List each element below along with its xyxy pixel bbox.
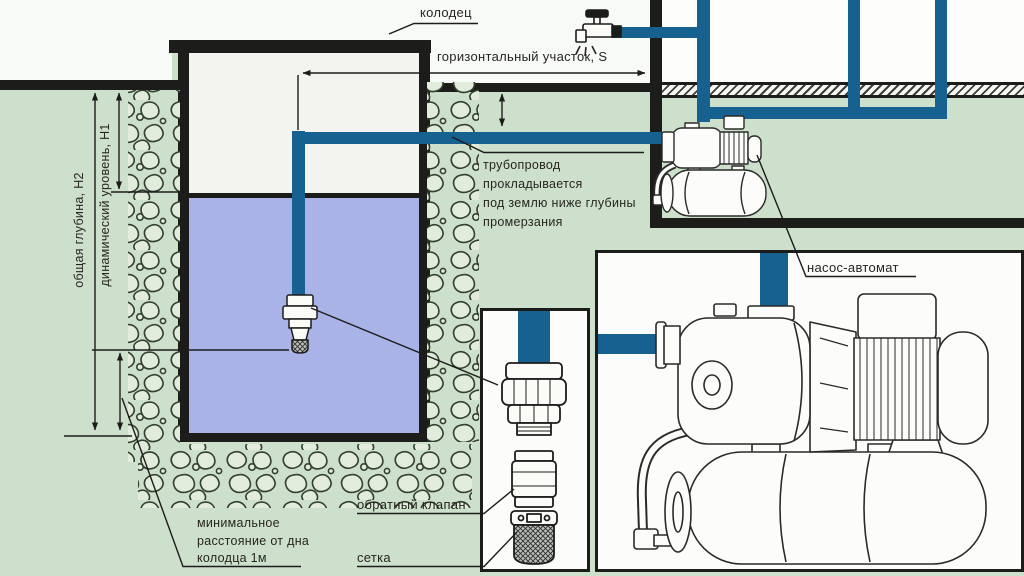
inset-foot-valve-box bbox=[480, 308, 590, 572]
well-water-supply-diagram: колодец горизонтальный участок, S трубоп… bbox=[0, 0, 1024, 576]
inset-pump-box bbox=[595, 250, 1024, 572]
pipeline-note-line: трубопровод bbox=[483, 156, 636, 175]
pipe-faucet-branch bbox=[612, 27, 709, 38]
pipe-underground-horizontal bbox=[292, 132, 672, 144]
pipeline-note-line: под землю ниже глубины bbox=[483, 194, 636, 213]
foot-valve-drawing bbox=[280, 294, 320, 360]
min-distance-line: расстояние от дна bbox=[197, 533, 309, 551]
check-valve-drawing bbox=[515, 451, 553, 461]
pipeline-note: трубопровод прокладывается под землю ниж… bbox=[483, 156, 636, 232]
pipeline-note-line: прокладывается bbox=[483, 175, 636, 194]
pump-station-drawing bbox=[598, 253, 1015, 569]
horizontal-section-label: горизонтальный участок, S bbox=[437, 49, 607, 64]
min-distance-label: минимальное расстояние от дна колодца 1м bbox=[197, 515, 309, 568]
strainer-label: сетка bbox=[357, 550, 391, 565]
foot-valve-detail-drawing bbox=[483, 311, 587, 569]
min-distance-line: минимальное bbox=[197, 515, 309, 533]
pipe-well-vertical bbox=[292, 131, 305, 297]
check-valve-label: обратный клапан bbox=[357, 497, 466, 512]
min-distance-line: колодца 1м bbox=[197, 550, 309, 568]
well-label: колодец bbox=[420, 5, 472, 20]
pipeline-note-line: промерзания bbox=[483, 213, 636, 232]
pipe-riser-3 bbox=[935, 0, 947, 118]
pipe-riser-main bbox=[697, 0, 710, 122]
pump-station-label: насос-автомат bbox=[807, 260, 899, 275]
pipe-riser-2 bbox=[848, 0, 860, 118]
dynamic-level-label: динамический уровень, H1 bbox=[98, 85, 114, 325]
total-depth-label: общая глубина, H2 bbox=[72, 110, 88, 350]
union-fitting-drawing bbox=[506, 363, 562, 379]
pump-unit-small-drawing bbox=[645, 115, 775, 227]
